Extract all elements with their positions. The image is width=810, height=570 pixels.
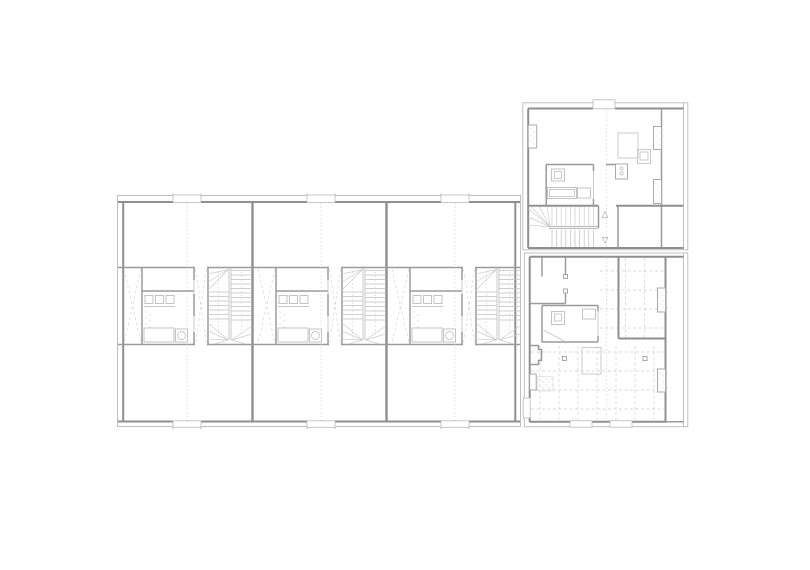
washbasin-fixture <box>578 188 591 198</box>
lower-point-house <box>523 253 688 427</box>
upper-house-bathroom <box>546 165 627 206</box>
stair-down-icon: ▽ <box>602 236 609 246</box>
lower-house-left-window <box>523 398 530 418</box>
shower-diagonal <box>544 330 566 342</box>
upper-house-stair <box>529 206 599 247</box>
stair-up-icon: △ <box>602 210 609 220</box>
upper-point-house: △ ▽ <box>523 100 688 250</box>
niche-hatch-right-4 <box>658 369 666 392</box>
stair-void-outline <box>582 348 601 375</box>
unit-1 <box>118 193 252 429</box>
row-wing-facade-outline <box>118 196 521 427</box>
floor-plan-canvas: △ ▽ <box>0 0 810 570</box>
niche-hatch-right-1 <box>654 127 662 150</box>
lower-house-bottom-window-1 <box>570 421 592 428</box>
niche-hatch-right-3 <box>658 288 666 312</box>
toilet-fixture <box>552 169 565 181</box>
column-marker-2 <box>643 357 647 361</box>
unit-2 <box>252 193 386 429</box>
hatch-patch <box>530 374 553 391</box>
lower-house-entry-rooms <box>530 257 568 304</box>
lower-house-facade-outline <box>524 253 688 427</box>
column-marker-1 <box>563 357 567 361</box>
upper-house-kitchen <box>616 133 651 179</box>
row-wing-building <box>118 193 521 429</box>
upper-house-top-window <box>593 100 615 109</box>
washbasin-fixture-2 <box>583 309 596 319</box>
floor-plan-svg: △ ▽ <box>0 0 810 570</box>
niche-hatch-right-2 <box>654 180 662 204</box>
niche-hatch-left <box>528 125 537 148</box>
upper-house-facade-outline <box>523 103 688 250</box>
toilet-fixture-2 <box>552 312 565 325</box>
unit-3 <box>386 193 520 429</box>
lower-house-bathroom <box>542 306 598 343</box>
lower-house-bottom-window-2 <box>610 421 632 428</box>
kitchen-sink <box>640 152 648 160</box>
